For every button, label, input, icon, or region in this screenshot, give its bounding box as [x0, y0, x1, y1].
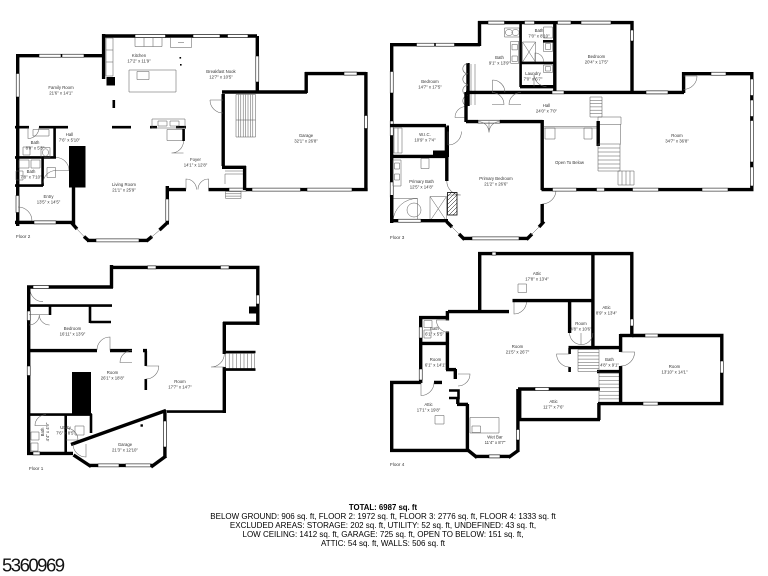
svg-text:Wet Bar: Wet Bar	[487, 435, 503, 440]
svg-text:EXCLUDED AREAS: STORAGE: 202 s: EXCLUDED AREAS: STORAGE: 202 sq. ft, UTI…	[230, 521, 536, 530]
svg-text:LOW CEILING: 1412 sq. ft, GARA: LOW CEILING: 1412 sq. ft, GARAGE: 725 sq…	[243, 530, 524, 539]
svg-text:Bedroom: Bedroom	[421, 79, 439, 84]
svg-text:Room: Room	[174, 379, 186, 384]
svg-text:14'1" x 12'8": 14'1" x 12'8"	[184, 163, 208, 168]
svg-text:Bedroom: Bedroom	[64, 326, 82, 331]
svg-text:TOTAL: 6987 sq. ft: TOTAL: 6987 sq. ft	[349, 503, 418, 512]
svg-text:5360969: 5360969	[2, 555, 65, 576]
svg-text:7'6" x 5'10": 7'6" x 5'10"	[59, 138, 81, 143]
svg-text:26'1" x 18'8": 26'1" x 18'8"	[101, 376, 125, 381]
svg-text:Bath: Bath	[31, 140, 40, 145]
svg-text:Bath: Bath	[605, 357, 614, 362]
svg-text:13'5" x 14'5": 13'5" x 14'5"	[37, 200, 61, 205]
svg-text:Entry: Entry	[43, 194, 54, 199]
svg-text:32'1" x 26'8": 32'1" x 26'8"	[294, 139, 318, 144]
svg-text:Primary Bath: Primary Bath	[409, 179, 434, 184]
svg-text:10'9" x 7'4": 10'9" x 7'4"	[414, 138, 436, 143]
svg-text:21'6" x 14'1": 21'6" x 14'1"	[49, 91, 73, 96]
svg-text:12'5" x 14'8": 12'5" x 14'8"	[410, 185, 434, 190]
svg-text:Floor 1: Floor 1	[29, 466, 44, 471]
svg-text:21'3" x 12'10": 21'3" x 12'10"	[112, 448, 138, 453]
svg-text:Utility: Utility	[60, 425, 71, 430]
svg-text:4'4" x 4'9": 4'4" x 4'9"	[45, 422, 50, 441]
svg-text:9'1" x 13'9": 9'1" x 13'9"	[489, 61, 511, 66]
svg-text:34'7" x 36'8": 34'7" x 36'8"	[665, 139, 689, 144]
svg-text:8'0" x 5'5": 8'0" x 5'5"	[26, 146, 45, 151]
svg-text:Bedroom: Bedroom	[588, 54, 606, 59]
svg-text:Hall: Hall	[543, 103, 550, 108]
svg-text:Room: Room	[107, 370, 119, 375]
svg-text:Attic: Attic	[549, 399, 558, 404]
svg-text:Room: Room	[669, 364, 681, 369]
svg-text:4'8" x 10'6": 4'8" x 10'6"	[570, 327, 592, 332]
svg-text:Attic: Attic	[602, 305, 611, 310]
svg-text:Living Room: Living Room	[112, 182, 136, 187]
svg-text:Attic: Attic	[424, 402, 433, 407]
svg-text:14'7" x 17'5": 14'7" x 17'5"	[418, 85, 442, 90]
svg-text:20'4" x 17'5": 20'4" x 17'5"	[585, 60, 609, 65]
svg-text:17'8" x 13'4": 17'8" x 13'4"	[525, 277, 549, 282]
svg-text:Laundry: Laundry	[525, 71, 541, 76]
svg-text:Room: Room	[430, 357, 442, 362]
svg-text:Hall: Hall	[66, 132, 73, 137]
svg-text:BELOW GROUND: 906 sq. ft, FLOO: BELOW GROUND: 906 sq. ft, FLOOR 2: 1972 …	[210, 512, 556, 521]
svg-text:ATTIC: 54 sq. ft, WALLS: 506 s: ATTIC: 54 sq. ft, WALLS: 506 sq. ft	[321, 539, 446, 548]
svg-text:11'4" x 8'7": 11'4" x 8'7"	[485, 440, 506, 445]
svg-text:17'7" x 14'7": 17'7" x 14'7"	[168, 385, 192, 390]
svg-text:21'5" x 26'7": 21'5" x 26'7"	[506, 350, 530, 355]
svg-text:Bath: Bath	[535, 28, 544, 33]
svg-text:12'7" x 10'5": 12'7" x 10'5"	[209, 75, 233, 80]
svg-text:6'1" x 14'1": 6'1" x 14'1"	[425, 363, 447, 368]
svg-text:13'10" x 14'1": 13'10" x 14'1"	[662, 370, 688, 375]
svg-text:Garage: Garage	[118, 442, 133, 447]
svg-text:Floor 3: Floor 3	[390, 235, 405, 240]
svg-text:24'0" x 7'0": 24'0" x 7'0"	[536, 109, 558, 114]
svg-text:7'6" x 8'5": 7'6" x 8'5"	[56, 431, 75, 436]
svg-text:Attic: Attic	[533, 271, 542, 276]
svg-text:Room: Room	[671, 133, 683, 138]
svg-text:Bath: Bath	[495, 55, 504, 60]
svg-text:Family Room: Family Room	[48, 85, 74, 90]
svg-text:Room: Room	[512, 344, 524, 349]
svg-text:16'11" x 13'9": 16'11" x 13'9"	[60, 332, 86, 337]
svg-text:21'2" x 26'6": 21'2" x 26'6"	[484, 182, 508, 187]
svg-text:11'7" x 7'6": 11'7" x 7'6"	[543, 405, 564, 410]
svg-text:8'9" x 13'4": 8'9" x 13'4"	[596, 311, 618, 316]
svg-text:Kitchen: Kitchen	[132, 53, 147, 58]
svg-text:Bath: Bath	[27, 169, 36, 174]
svg-text:7'8" x 7'10": 7'8" x 7'10"	[20, 175, 42, 180]
svg-text:Floor 4: Floor 4	[390, 462, 405, 467]
svg-text:Room: Room	[575, 321, 587, 326]
svg-text:4'8" x 9'1": 4'8" x 9'1"	[600, 363, 619, 368]
svg-text:Garage: Garage	[299, 133, 314, 138]
svg-text:Primary Bedroom: Primary Bedroom	[479, 176, 513, 181]
svg-text:Floor 2: Floor 2	[16, 234, 31, 239]
svg-text:Foyer: Foyer	[190, 157, 202, 162]
svg-text:17'2" x 11'9": 17'2" x 11'9"	[127, 59, 151, 64]
svg-text:W.I.C.: W.I.C.	[419, 132, 431, 137]
svg-text:17'1" x 19'8": 17'1" x 19'8"	[417, 408, 441, 413]
svg-text:Open To Below: Open To Below	[555, 160, 585, 165]
svg-text:7'0" x 6'7": 7'0" x 6'7"	[524, 77, 543, 82]
svg-text:6'1" x 5'5": 6'1" x 5'5"	[425, 332, 444, 337]
svg-text:Breakfast Nook: Breakfast Nook	[206, 69, 236, 74]
svg-text:21'1" x 25'9": 21'1" x 25'9"	[112, 188, 136, 193]
